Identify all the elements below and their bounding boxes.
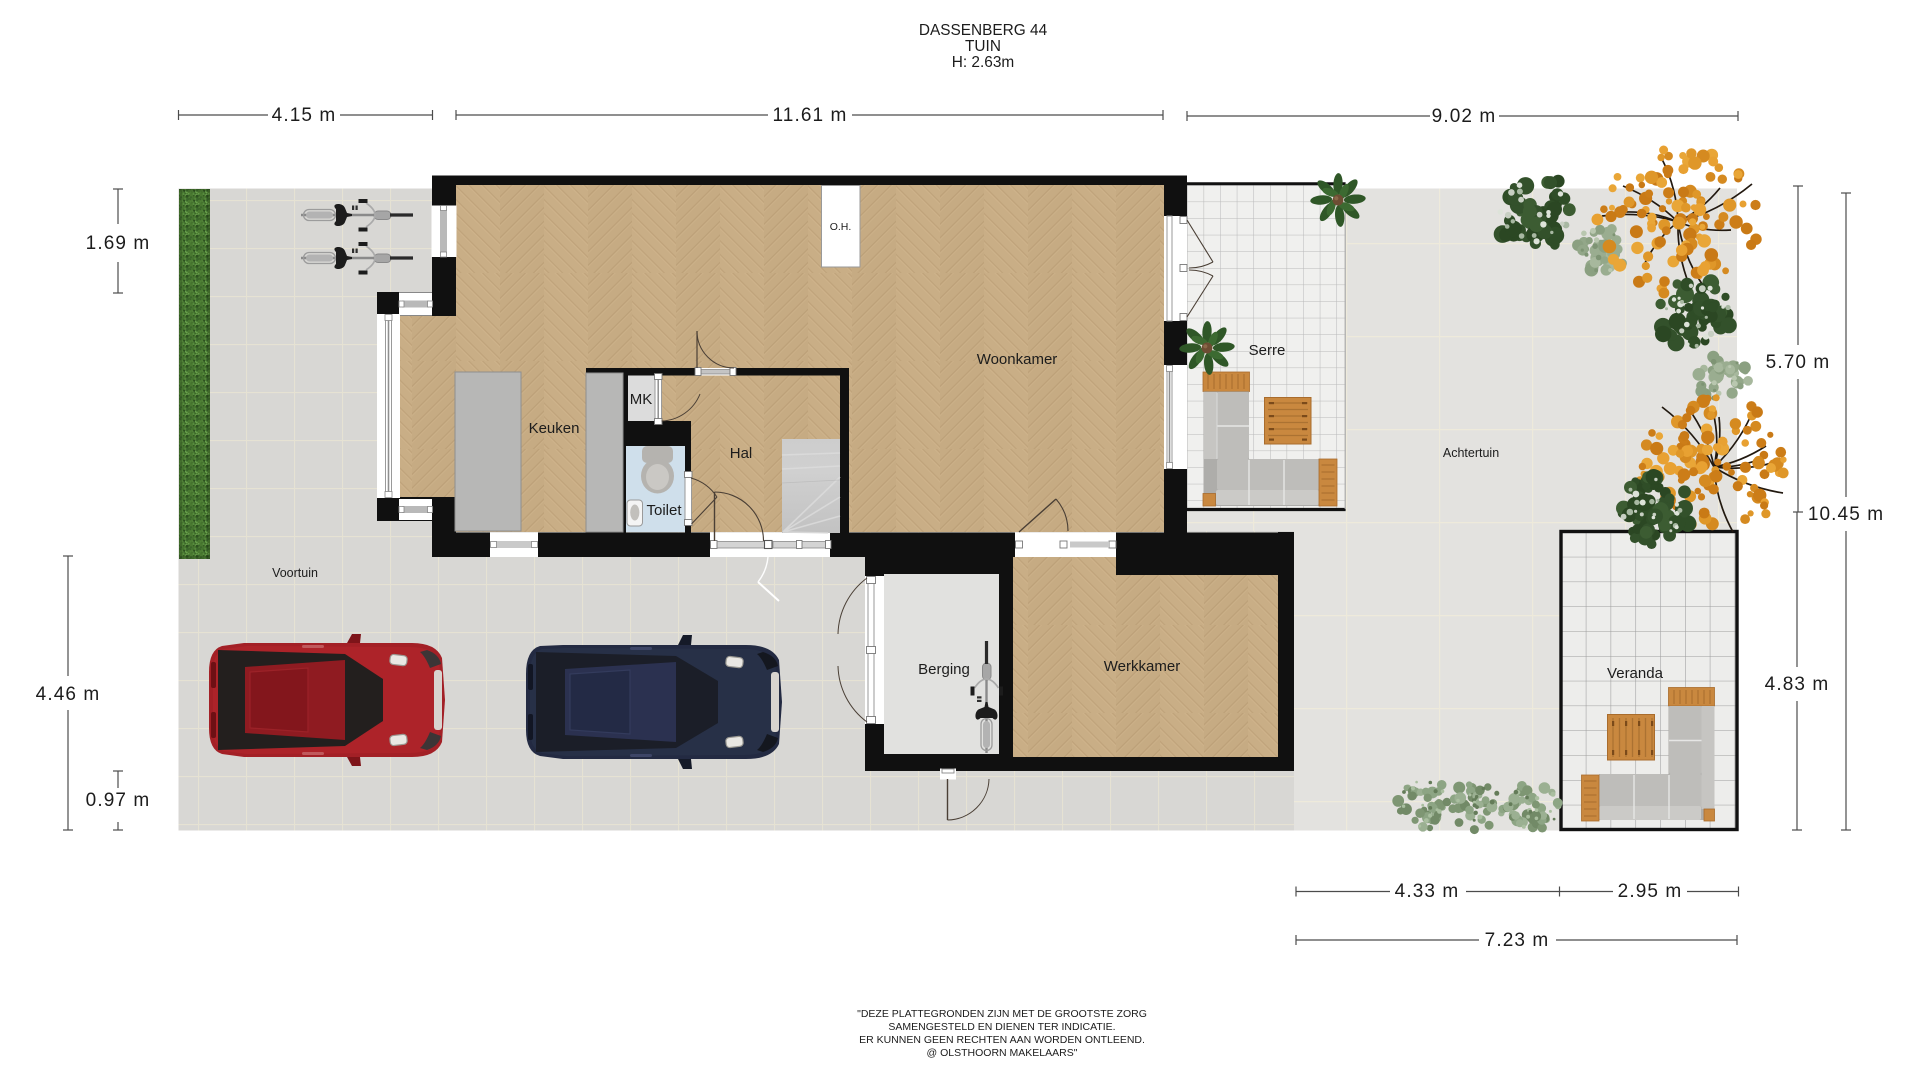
- svg-text:Toilet: Toilet: [646, 502, 682, 519]
- svg-text:Veranda: Veranda: [1607, 665, 1664, 682]
- svg-text:11.61 m: 11.61 m: [773, 105, 848, 126]
- svg-text:2.95 m: 2.95 m: [1618, 881, 1683, 902]
- svg-text:Werkkamer: Werkkamer: [1104, 658, 1180, 675]
- svg-text:4.83 m: 4.83 m: [1765, 674, 1830, 695]
- svg-text:0.97 m: 0.97 m: [86, 790, 151, 811]
- svg-text:Berging: Berging: [918, 661, 970, 678]
- svg-text:H: 2.63m: H: 2.63m: [952, 54, 1014, 71]
- svg-text:10.45 m: 10.45 m: [1808, 504, 1884, 525]
- svg-text:Serre: Serre: [1249, 342, 1286, 359]
- svg-text:O.H.: O.H.: [830, 221, 852, 233]
- svg-text:Woonkamer: Woonkamer: [977, 351, 1058, 368]
- svg-text:SAMENGESTELD EN DIENEN TER IND: SAMENGESTELD EN DIENEN TER INDICATIE.: [888, 1021, 1115, 1033]
- svg-text:TUIN: TUIN: [965, 38, 1001, 55]
- svg-text:@ OLSTHOORN MAKELAARS": @ OLSTHOORN MAKELAARS": [927, 1047, 1078, 1059]
- svg-text:ER KUNNEN GEEN RECHTEN AAN WOR: ER KUNNEN GEEN RECHTEN AAN WORDEN ONTLEE…: [859, 1034, 1145, 1046]
- svg-text:4.46 m: 4.46 m: [36, 684, 101, 705]
- svg-text:MK: MK: [630, 391, 653, 408]
- svg-text:9.02 m: 9.02 m: [1432, 106, 1497, 127]
- svg-text:1.69 m: 1.69 m: [86, 233, 151, 254]
- svg-text:Keuken: Keuken: [529, 420, 580, 437]
- svg-text:DASSENBERG 44: DASSENBERG 44: [919, 22, 1048, 39]
- svg-text:4.33 m: 4.33 m: [1395, 881, 1460, 902]
- svg-text:5.70 m: 5.70 m: [1766, 352, 1831, 373]
- svg-text:Achtertuin: Achtertuin: [1443, 446, 1499, 460]
- svg-text:Voortuin: Voortuin: [272, 566, 318, 580]
- svg-text:7.23 m: 7.23 m: [1485, 930, 1550, 951]
- svg-text:4.15 m: 4.15 m: [272, 105, 337, 126]
- svg-text:Hal: Hal: [730, 445, 753, 462]
- svg-text:"DEZE PLATTEGRONDEN ZIJN MET D: "DEZE PLATTEGRONDEN ZIJN MET DE GROOTSTE…: [857, 1008, 1147, 1020]
